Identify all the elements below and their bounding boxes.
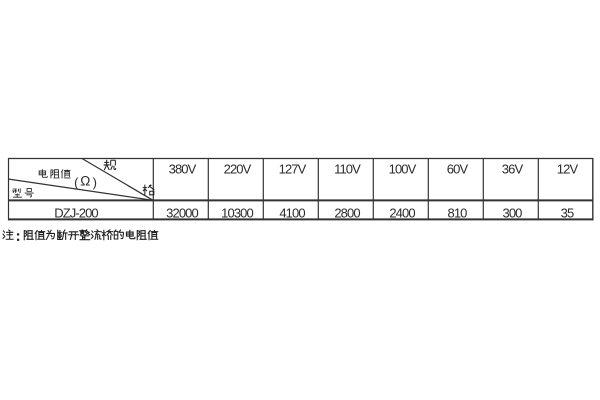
svg-text:12V: 12V: [557, 162, 579, 177]
svg-text:Ω: Ω: [80, 174, 90, 189]
svg-text:380V: 380V: [169, 162, 197, 177]
svg-text:DZJ-200: DZJ-200: [54, 205, 98, 220]
svg-text:60V: 60V: [447, 162, 469, 177]
svg-text:810: 810: [448, 205, 468, 220]
svg-text:2400: 2400: [389, 205, 415, 220]
svg-text:4100: 4100: [279, 205, 305, 220]
svg-text:(: (: [74, 175, 79, 190]
svg-text:10300: 10300: [221, 205, 253, 220]
svg-text:110V: 110V: [334, 162, 361, 177]
svg-text:220V: 220V: [224, 162, 252, 177]
svg-text:127V: 127V: [279, 162, 307, 177]
svg-text:): ): [93, 175, 97, 190]
svg-text:35: 35: [561, 205, 574, 220]
svg-text:300: 300: [503, 205, 523, 220]
svg-text:32000: 32000: [166, 205, 198, 220]
svg-text:2800: 2800: [334, 205, 360, 220]
svg-text:100V: 100V: [389, 162, 417, 177]
svg-text:36V: 36V: [502, 162, 524, 177]
